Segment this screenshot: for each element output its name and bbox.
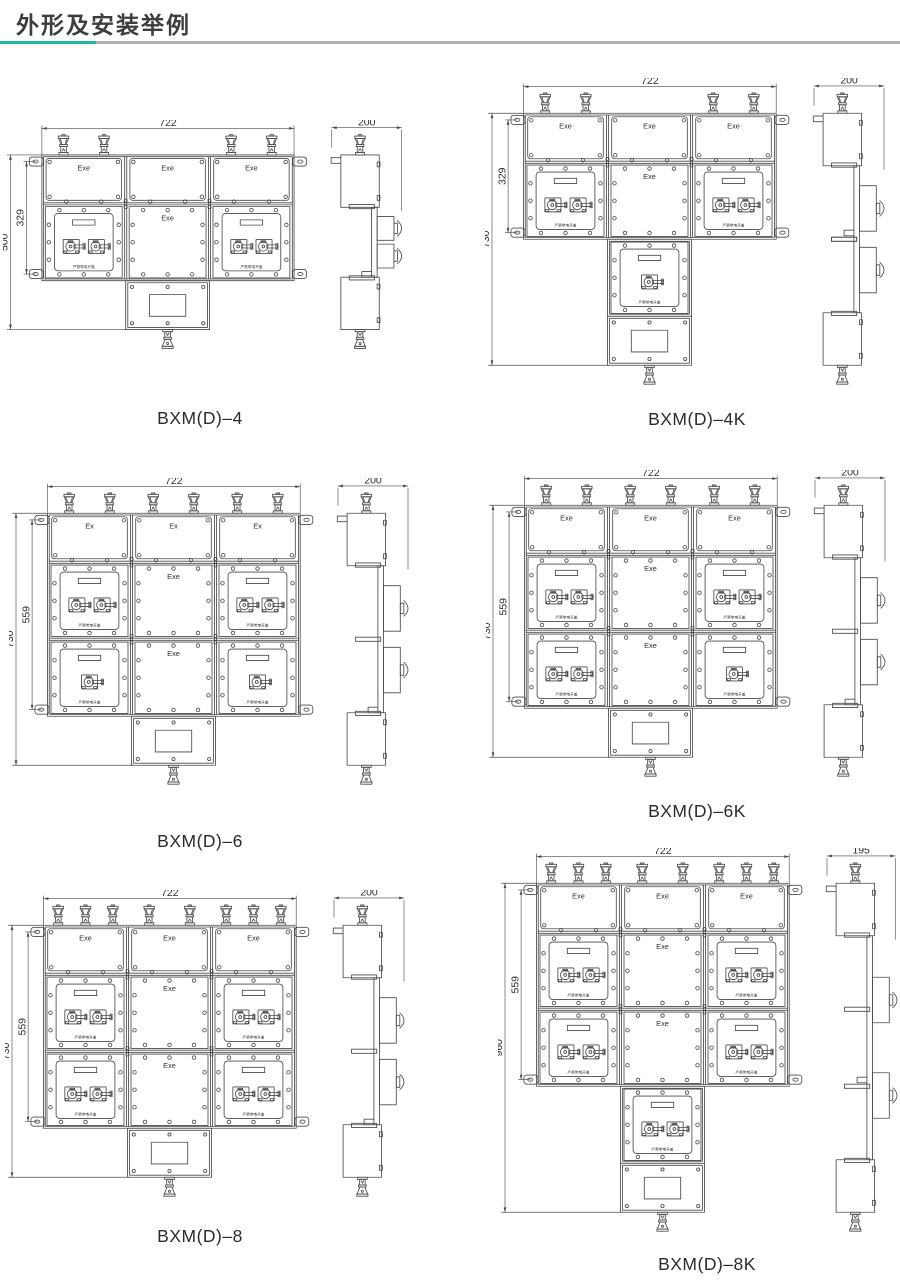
dim-overall-width: 722 xyxy=(159,120,177,129)
cover-panel: Exe xyxy=(135,565,212,636)
rotary-switch-icon xyxy=(571,667,593,681)
cable-gland-icon xyxy=(357,905,368,925)
cable-gland-icon xyxy=(540,93,551,113)
warning-label: 严禁带电开盖 xyxy=(568,1070,590,1075)
cable-gland-icon xyxy=(99,135,109,155)
panel-label: Exe xyxy=(163,984,176,993)
cable-gland-icon xyxy=(657,1212,668,1231)
panel-label: Exe xyxy=(77,163,90,172)
dim-side-width: 195 xyxy=(852,848,870,857)
front-view: ExeExeExe严禁带电开盖Exe严禁带电开盖严禁带电开盖722730329 xyxy=(485,78,789,384)
warning-label: 严禁带电开盖 xyxy=(736,1070,758,1075)
terminal-panel: Exe xyxy=(48,929,124,974)
cable-gland-icon xyxy=(714,863,725,883)
switch-panel: 严禁带电开盖 xyxy=(696,557,773,628)
mounting-tab xyxy=(293,157,307,166)
switch-panel: 严禁带电开盖 xyxy=(695,165,772,236)
figure-bxmd-4k: ExeExeExe严禁带电开盖Exe严禁带电开盖严禁带电开盖7227303292… xyxy=(485,78,900,390)
switch-panel: 严禁带电开盖 xyxy=(219,642,296,713)
mounting-tab xyxy=(299,515,313,524)
warning-label: 严禁带电开盖 xyxy=(247,700,269,705)
panel-label: Exe xyxy=(560,514,573,523)
rotary-switch-icon xyxy=(726,1045,748,1059)
rotary-switch-icon xyxy=(714,590,736,604)
side-view: 200 xyxy=(337,478,408,784)
switch-panel: 严禁带电开盖 xyxy=(527,165,604,236)
cable-gland-icon xyxy=(708,93,719,113)
cable-gland-icon xyxy=(546,863,557,883)
dim-overall-width: 722 xyxy=(161,890,179,899)
terminal-panel: Exe xyxy=(529,509,605,554)
switch-panel: 严禁带电开盖 xyxy=(528,557,605,628)
cover-panel: Exe xyxy=(131,1054,208,1125)
rotary-switch-icon xyxy=(65,1010,87,1024)
panel-label: Exe xyxy=(727,122,740,131)
cable-gland-icon xyxy=(162,330,173,349)
rotary-switch-icon xyxy=(739,590,761,604)
side-view: 195 xyxy=(826,848,897,1231)
mounting-tab xyxy=(776,507,790,516)
warning-label: 严禁带电开盖 xyxy=(568,993,590,998)
panel-label: Exe xyxy=(643,172,656,181)
rotary-switch-icon xyxy=(258,1010,280,1024)
cover-panel: Exe xyxy=(624,1012,701,1083)
rotary-switch-icon xyxy=(546,667,568,681)
warning-label: 严禁带电开盖 xyxy=(724,615,746,620)
cable-gland-icon xyxy=(221,905,232,925)
cable-gland-icon xyxy=(226,135,236,155)
dim-overall-height: 730 xyxy=(9,630,16,648)
terminal-panel: Ex xyxy=(220,517,296,562)
dim-overall-width: 722 xyxy=(642,470,660,479)
switch-panel: 严禁带电开盖 xyxy=(213,207,290,278)
cable-gland-icon xyxy=(273,493,284,513)
panel-label: Exe xyxy=(163,934,176,943)
cable-gland-icon xyxy=(232,493,243,513)
rotary-switch-icon xyxy=(571,590,593,604)
rotary-switch-icon xyxy=(583,1045,605,1059)
cable-gland-icon xyxy=(148,493,159,513)
terminal-panel: Exe xyxy=(541,887,617,932)
panel-label: Exe xyxy=(163,1061,176,1070)
dim-overall-width: 722 xyxy=(654,848,672,857)
cable-gland-icon xyxy=(185,905,196,925)
rotary-switch-icon xyxy=(546,590,568,604)
cable-gland-icon xyxy=(276,905,287,925)
switch-panel: 严禁带电开盖 xyxy=(47,1054,124,1125)
switch-panel: 严禁带电开盖 xyxy=(540,935,617,1006)
panel-label: Ex xyxy=(169,522,178,531)
rotary-switch-icon xyxy=(751,1045,773,1059)
figure-caption: BXM(D)–4 xyxy=(110,408,290,429)
warning-label: 严禁带电开盖 xyxy=(736,993,758,998)
rotary-switch-icon xyxy=(558,1045,580,1059)
rotary-switch-icon xyxy=(231,239,253,253)
terminal-panel: Ex xyxy=(136,517,212,562)
mounting-tab xyxy=(775,115,789,124)
side-view: 200 xyxy=(331,120,402,348)
cover-panel: Exe xyxy=(129,207,206,278)
cover-panel: Exe xyxy=(612,557,689,628)
dim-mounting-height: 329 xyxy=(16,209,27,227)
switch-panel: 严禁带电开盖 xyxy=(47,977,124,1048)
cable-gland-icon xyxy=(168,765,179,784)
dim-side-width: 200 xyxy=(358,120,376,128)
cable-gland-icon xyxy=(582,485,593,505)
bxmd-6k-drawing: ExeExeExe严禁带电开盖Exe严禁带电开盖严禁带电开盖Exe严禁带电开盖7… xyxy=(486,470,900,782)
dim-side-width: 200 xyxy=(364,478,382,487)
rotary-switch-icon xyxy=(249,675,271,689)
cable-gland-icon xyxy=(355,135,365,155)
title-rule-accent xyxy=(0,41,96,44)
warning-label: 严禁带电开盖 xyxy=(556,615,578,620)
rotary-switch-icon xyxy=(641,275,663,289)
cable-gland-icon xyxy=(164,1177,175,1196)
dim-overall-height: 500 xyxy=(3,233,11,251)
panel-label: Exe xyxy=(167,649,180,658)
rotary-switch-icon xyxy=(90,1010,112,1024)
cable-gland-icon xyxy=(850,1212,861,1231)
front-view: ExeExeExe严禁带电开盖Exe严禁带电开盖722500329 xyxy=(3,120,307,348)
dim-side-width: 200 xyxy=(360,890,378,899)
cable-gland-icon xyxy=(573,863,584,883)
cable-gland-icon xyxy=(108,905,119,925)
cable-gland-icon xyxy=(581,93,592,113)
figure-bxmd-4: ExeExeExe严禁带电开盖Exe严禁带电开盖722500329200 xyxy=(3,120,437,354)
dim-mounting-height: 329 xyxy=(496,167,508,185)
cable-gland-icon xyxy=(64,493,74,513)
cable-gland-icon xyxy=(357,1177,368,1196)
switch-panel: 严禁带电开盖 xyxy=(540,1012,617,1083)
cover-panel: Exe xyxy=(131,977,208,1048)
rotary-switch-icon xyxy=(258,1087,280,1101)
cable-gland-icon xyxy=(361,493,372,513)
panel-label: Exe xyxy=(728,514,741,523)
bxmd-4-drawing: ExeExeExe严禁带电开盖Exe严禁带电开盖722500329200 xyxy=(3,120,437,354)
terminal-panel: Exe xyxy=(46,158,121,203)
rotary-switch-icon xyxy=(237,598,259,612)
rotary-switch-icon xyxy=(738,198,760,212)
warning-label: 严禁带电开盖 xyxy=(240,264,262,269)
rotary-switch-icon xyxy=(63,239,85,253)
bxmd-6-drawing: ExExEx严禁带电开盖Exe严禁带电开盖严禁带电开盖Exe严禁带电开盖7227… xyxy=(9,478,443,790)
terminal-panel: Exe xyxy=(709,887,785,932)
side-view: 200 xyxy=(813,78,884,384)
cable-gland-icon xyxy=(838,485,849,505)
dim-mounting-height: 559 xyxy=(509,976,521,994)
terminal-panel: Exe xyxy=(696,117,772,162)
cable-gland-icon xyxy=(666,485,677,505)
terminal-panel: Exe xyxy=(613,509,689,554)
panel-label: Exe xyxy=(644,641,657,650)
rotary-switch-icon xyxy=(233,1010,255,1024)
cable-gland-icon xyxy=(850,863,861,883)
warning-label: 严禁带电开盖 xyxy=(247,623,269,628)
window-box xyxy=(621,1163,705,1212)
cable-gland-icon xyxy=(354,330,365,349)
figure-bxmd-8k: ExeExeExe严禁带电开盖Exe严禁带电开盖严禁带电开盖Exe严禁带电开盖严… xyxy=(498,848,900,1237)
front-view: ExeExeExe严禁带电开盖Exe严禁带电开盖严禁带电开盖Exe严禁带电开盖7… xyxy=(5,890,309,1196)
panel-label: Exe xyxy=(643,122,656,131)
cable-gland-icon xyxy=(769,863,780,883)
rotary-switch-icon xyxy=(558,968,580,982)
cable-gland-icon xyxy=(144,905,155,925)
switch-panel: 严禁带电开盖 xyxy=(708,935,785,1006)
cable-gland-icon xyxy=(637,863,648,883)
warning-label: 严禁带电开盖 xyxy=(639,300,661,305)
figure-caption: BXM(D)–6 xyxy=(110,831,290,852)
figure-caption: BXM(D)–4K xyxy=(607,409,787,430)
dim-overall-height: 960 xyxy=(498,1039,505,1057)
title-rule xyxy=(0,41,900,44)
rotary-switch-icon xyxy=(642,1122,664,1136)
panel-label: Exe xyxy=(572,892,585,901)
front-view: ExeExeExe严禁带电开盖Exe严禁带电开盖严禁带电开盖Exe严禁带电开盖严… xyxy=(498,848,802,1231)
rotary-switch-icon xyxy=(713,198,735,212)
dim-overall-height: 730 xyxy=(5,1042,12,1060)
side-view: 200 xyxy=(814,470,885,776)
switch-panel: 严禁带电开盖 xyxy=(708,1012,785,1083)
terminal-panel: Ex xyxy=(52,517,128,562)
terminal-panel: Exe xyxy=(625,887,701,932)
switch-panel: 严禁带电开盖 xyxy=(215,977,292,1048)
warning-label: 严禁带电开盖 xyxy=(243,1035,265,1040)
switch-panel: 严禁带电开盖 xyxy=(51,565,128,636)
mounting-tab xyxy=(293,269,307,278)
cable-gland-icon xyxy=(709,485,720,505)
figure-bxmd-8: ExeExeExe严禁带电开盖Exe严禁带电开盖严禁带电开盖Exe严禁带电开盖7… xyxy=(5,890,439,1202)
rotary-switch-icon xyxy=(726,968,748,982)
mounting-tab xyxy=(776,697,790,706)
terminal-panel: Exe xyxy=(697,509,773,554)
cable-gland-icon xyxy=(644,365,655,384)
dim-mounting-height: 559 xyxy=(16,1018,28,1036)
panel-label: Exe xyxy=(167,572,180,581)
mounting-tab xyxy=(299,705,313,714)
rotary-switch-icon xyxy=(65,1087,87,1101)
figure-bxmd-6: ExExEx严禁带电开盖Exe严禁带电开盖严禁带电开盖Exe严禁带电开盖7227… xyxy=(9,478,443,790)
window-box xyxy=(609,708,693,757)
switch-panel: 严禁带电开盖 xyxy=(624,1089,701,1160)
rotary-switch-icon xyxy=(94,598,116,612)
cable-gland-icon xyxy=(678,863,689,883)
panel-label: Exe xyxy=(644,564,657,573)
panel-label: Exe xyxy=(79,934,92,943)
terminal-panel: Exe xyxy=(528,117,604,162)
cable-gland-icon xyxy=(838,757,849,776)
figure-caption: BXM(D)–6K xyxy=(607,801,787,822)
terminal-panel: Exe xyxy=(132,929,208,974)
figure-bxmd-6k: ExeExeExe严禁带电开盖Exe严禁带电开盖严禁带电开盖Exe严禁带电开盖7… xyxy=(486,470,900,782)
warning-label: 严禁带电开盖 xyxy=(75,1112,97,1117)
cable-gland-icon xyxy=(80,905,91,925)
front-view: ExeExeExe严禁带电开盖Exe严禁带电开盖严禁带电开盖Exe严禁带电开盖7… xyxy=(486,470,790,776)
warning-label: 严禁带电开盖 xyxy=(555,223,577,228)
switch-panel: 严禁带电开盖 xyxy=(696,634,773,705)
cable-gland-icon xyxy=(58,135,68,155)
panel-label: Exe xyxy=(161,163,174,172)
window-box xyxy=(132,716,216,765)
cable-gland-icon xyxy=(601,863,612,883)
panel-label: Exe xyxy=(247,934,260,943)
cover-panel: Exe xyxy=(611,165,688,236)
panel-label: Exe xyxy=(740,892,753,901)
dim-mounting-height: 559 xyxy=(20,606,32,624)
dim-overall-width: 722 xyxy=(165,478,183,487)
cable-gland-icon xyxy=(749,93,760,113)
cable-gland-icon xyxy=(837,365,848,384)
switch-panel: 严禁带电开盖 xyxy=(51,642,128,713)
warning-label: 严禁带电开盖 xyxy=(75,1035,97,1040)
warning-label: 严禁带电开盖 xyxy=(556,692,578,697)
window-box xyxy=(608,316,692,365)
panel-label: Ex xyxy=(253,522,262,531)
window-box xyxy=(126,281,210,330)
cable-gland-icon xyxy=(625,485,636,505)
cable-gland-icon xyxy=(837,93,848,113)
rotary-switch-icon xyxy=(751,968,773,982)
mounting-tab xyxy=(775,228,789,237)
panel-label: Exe xyxy=(656,942,669,951)
window-box xyxy=(128,1128,212,1177)
warning-label: 严禁带电开盖 xyxy=(243,1112,265,1117)
rotary-switch-icon xyxy=(69,598,91,612)
rotary-switch-icon xyxy=(667,1122,689,1136)
cover-panel: Exe xyxy=(612,634,689,705)
mounting-tab xyxy=(295,927,309,936)
rotary-switch-icon xyxy=(88,239,110,253)
warning-label: 严禁带电开盖 xyxy=(724,692,746,697)
terminal-panel: Exe xyxy=(612,117,688,162)
panel-label: Exe xyxy=(559,122,572,131)
warning-label: 严禁带电开盖 xyxy=(79,700,101,705)
cover-panel: Exe xyxy=(624,935,701,1006)
bxmd-8k-drawing: ExeExeExe严禁带电开盖Exe严禁带电开盖严禁带电开盖Exe严禁带电开盖严… xyxy=(498,848,900,1237)
bxmd-8-drawing: ExeExeExe严禁带电开盖Exe严禁带电开盖严禁带电开盖Exe严禁带电开盖7… xyxy=(5,890,439,1202)
rotary-switch-icon xyxy=(545,198,567,212)
terminal-panel: Exe xyxy=(216,929,292,974)
mounting-tab xyxy=(788,885,802,894)
front-view: ExExEx严禁带电开盖Exe严禁带电开盖严禁带电开盖Exe严禁带电开盖7227… xyxy=(9,478,313,784)
page-title: 外形及安装举例 xyxy=(16,6,191,40)
cover-panel: Exe xyxy=(135,642,212,713)
switch-panel: 严禁带电开盖 xyxy=(528,634,605,705)
panel-label: Exe xyxy=(245,163,258,172)
panel-label: Exe xyxy=(161,214,174,223)
panel-label: Exe xyxy=(656,1019,669,1028)
terminal-panel: Exe xyxy=(214,158,289,203)
cable-gland-icon xyxy=(105,493,116,513)
switch-panel: 严禁带电开盖 xyxy=(45,207,122,278)
dim-side-width: 200 xyxy=(840,78,858,87)
side-view: 200 xyxy=(333,890,404,1196)
rotary-switch-icon xyxy=(233,1087,255,1101)
figure-caption: BXM(D)–8K xyxy=(617,1254,797,1275)
dim-overall-width: 722 xyxy=(641,78,659,87)
rotary-switch-icon xyxy=(90,1087,112,1101)
warning-label: 严禁带电开盖 xyxy=(79,623,101,628)
bxmd-4k-drawing: ExeExeExe严禁带电开盖Exe严禁带电开盖严禁带电开盖7227303292… xyxy=(485,78,900,390)
cable-gland-icon xyxy=(189,493,200,513)
rotary-switch-icon xyxy=(583,968,605,982)
figure-caption: BXM(D)–8 xyxy=(110,1226,290,1247)
terminal-panel: Exe xyxy=(130,158,205,203)
cable-gland-icon xyxy=(645,757,656,776)
dim-overall-height: 730 xyxy=(485,230,492,248)
dim-overall-height: 730 xyxy=(486,622,493,640)
rotary-switch-icon xyxy=(81,675,103,689)
cable-gland-icon xyxy=(361,765,372,784)
warning-label: 严禁带电开盖 xyxy=(652,1147,674,1152)
cable-gland-icon xyxy=(541,485,552,505)
switch-panel: 严禁带电开盖 xyxy=(219,565,296,636)
cable-gland-icon xyxy=(53,905,64,925)
mounting-tab xyxy=(295,1117,309,1126)
cable-gland-icon xyxy=(266,135,276,155)
cable-gland-icon xyxy=(750,485,761,505)
mounting-tab xyxy=(788,1075,802,1084)
panel-label: Ex xyxy=(85,522,94,531)
rotary-switch-icon xyxy=(256,239,278,253)
switch-panel: 严禁带电开盖 xyxy=(611,242,688,313)
warning-label: 严禁带电开盖 xyxy=(73,264,95,269)
dim-mounting-height: 559 xyxy=(497,598,509,616)
panel-label: Exe xyxy=(644,514,657,523)
rotary-switch-icon xyxy=(262,598,284,612)
cable-gland-icon xyxy=(741,863,752,883)
panel-label: Exe xyxy=(656,892,669,901)
rotary-switch-icon xyxy=(570,198,592,212)
warning-label: 严禁带电开盖 xyxy=(723,223,745,228)
cable-gland-icon xyxy=(248,905,259,925)
rotary-switch-icon xyxy=(726,667,748,681)
dim-side-width: 200 xyxy=(841,470,859,479)
switch-panel: 严禁带电开盖 xyxy=(215,1054,292,1125)
